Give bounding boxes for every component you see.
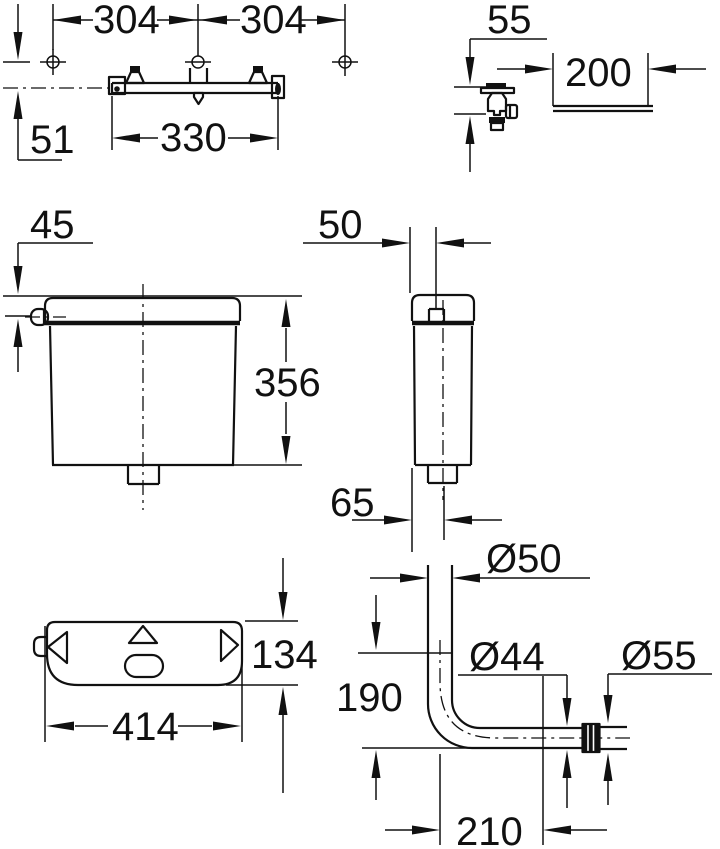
dim-hole-spacing-left: 304 xyxy=(93,0,160,42)
mounting-rail-drawing xyxy=(109,66,284,104)
dim-wall-clearance: 200 xyxy=(565,51,632,95)
dim-spigot-diameter: Ø44 xyxy=(469,635,545,679)
dim-valve-offset: 55 xyxy=(487,0,532,42)
dim-drop-length: 190 xyxy=(336,676,403,720)
drawing-canvas: 304 304 xyxy=(0,0,720,849)
dim-inlet-depth-group: 50 xyxy=(303,203,491,308)
dim-width: 414 xyxy=(112,705,179,749)
dim-coupling-diameter: Ø55 xyxy=(621,634,697,678)
dim-horizontal-length: 210 xyxy=(456,810,523,849)
dim-rail-length-group: 330 xyxy=(112,96,278,160)
view-mounting-rail: 304 304 xyxy=(3,0,358,162)
dim-depth: 134 xyxy=(251,633,318,677)
cistern-side-drawing xyxy=(412,295,474,500)
pipe-coupling xyxy=(583,724,599,752)
view-flush-pipe: Ø50 190 Ø44 Ø55 210 xyxy=(336,537,712,849)
dim-pipe-diameter-group: Ø50 xyxy=(370,537,590,583)
dim-pipe-diameter: Ø50 xyxy=(486,537,562,581)
cistern-dimension-drawing: 304 304 xyxy=(0,0,720,849)
angle-valve-drawing xyxy=(481,83,517,130)
view-cistern-front: 45 356 xyxy=(3,203,321,510)
dim-inlet-depth: 50 xyxy=(318,203,363,247)
cistern-top-drawing xyxy=(34,622,242,685)
dim-outlet-offset: 65 xyxy=(330,481,375,525)
dim-wall-clearance-group: 200 xyxy=(497,51,706,111)
dim-drop-length-group: 190 xyxy=(336,595,403,800)
dim-coupling-diameter-group: Ø55 xyxy=(604,634,713,805)
view-cistern-top: 134 414 xyxy=(34,558,318,793)
view-supply-valve: 55 200 xyxy=(454,0,706,172)
dim-inlet-offset-group: 45 xyxy=(5,203,93,372)
fixing-hole-marker-left xyxy=(3,49,66,75)
dim-height: 356 xyxy=(254,361,321,405)
dim-rail-offset: 51 xyxy=(30,118,75,162)
fixing-hole-marker-right xyxy=(332,50,358,76)
dim-rail-length: 330 xyxy=(160,116,227,160)
dim-outlet-offset-group: 65 xyxy=(330,481,502,525)
view-cistern-side: 50 65 xyxy=(303,203,502,552)
dim-rail-offset-group: 51 xyxy=(14,4,75,162)
dim-horizontal-length-group: 210 xyxy=(385,754,607,849)
fixing-hole-marker-center xyxy=(185,56,211,68)
dim-inlet-offset: 45 xyxy=(30,203,75,247)
dim-height-group: 356 xyxy=(254,299,321,464)
dim-spigot-diameter-group: Ø44 xyxy=(458,635,572,808)
dim-hole-spacing-right: 304 xyxy=(240,0,307,42)
